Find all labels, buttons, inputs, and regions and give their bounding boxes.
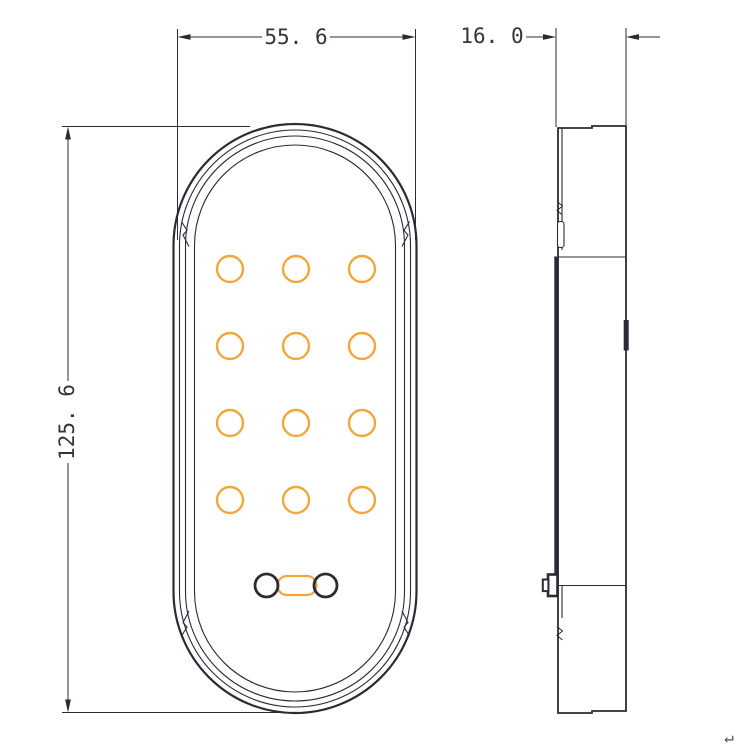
front-outline-inner (180, 130, 411, 707)
side-screw-boss (548, 575, 558, 597)
front-view (174, 124, 417, 713)
led-circle (283, 410, 309, 436)
led-circle (217, 487, 243, 513)
side-view (543, 126, 629, 713)
connector-terminal-left (255, 574, 278, 597)
technical-drawing-canvas: 55. 6125. 616. 0↵ (0, 0, 750, 750)
led-circle (283, 256, 309, 282)
led-circle (217, 410, 243, 436)
dimension-depth: 16. 0 (460, 24, 660, 127)
led-circle (217, 256, 243, 282)
dimension-label-height: 125. 6 (55, 384, 79, 460)
arrowhead-right (403, 34, 416, 40)
dimension-label-width: 55. 6 (264, 25, 327, 49)
dimension-label-depth: 16. 0 (460, 24, 523, 48)
side-clip-slot (558, 222, 565, 248)
arrowhead-right-in (626, 34, 639, 40)
arrowhead-top (65, 127, 71, 140)
connector-link (278, 576, 317, 595)
front-outer-outline (174, 124, 417, 713)
arrowhead-left-in (543, 34, 556, 40)
arrowhead-bottom (65, 700, 71, 713)
side-screw-head (543, 580, 549, 592)
led-circle (349, 487, 375, 513)
dimension-width: 55. 6 (178, 25, 416, 240)
return-glyph: ↵ (724, 728, 734, 747)
technical-drawing-page: 55. 6125. 616. 0↵ (0, 0, 750, 750)
side-lens-edge (554, 257, 558, 586)
led-circle (283, 487, 309, 513)
front-lens-outline (195, 145, 396, 692)
led-circle (349, 333, 375, 359)
annotations: ↵ (724, 728, 734, 747)
led-circle (217, 333, 243, 359)
arrowhead-left (178, 34, 191, 40)
led-circle (349, 410, 375, 436)
side-right-tick (624, 320, 629, 351)
led-circle (349, 256, 375, 282)
side-outer-outline (558, 126, 626, 713)
led-circle (283, 333, 309, 359)
